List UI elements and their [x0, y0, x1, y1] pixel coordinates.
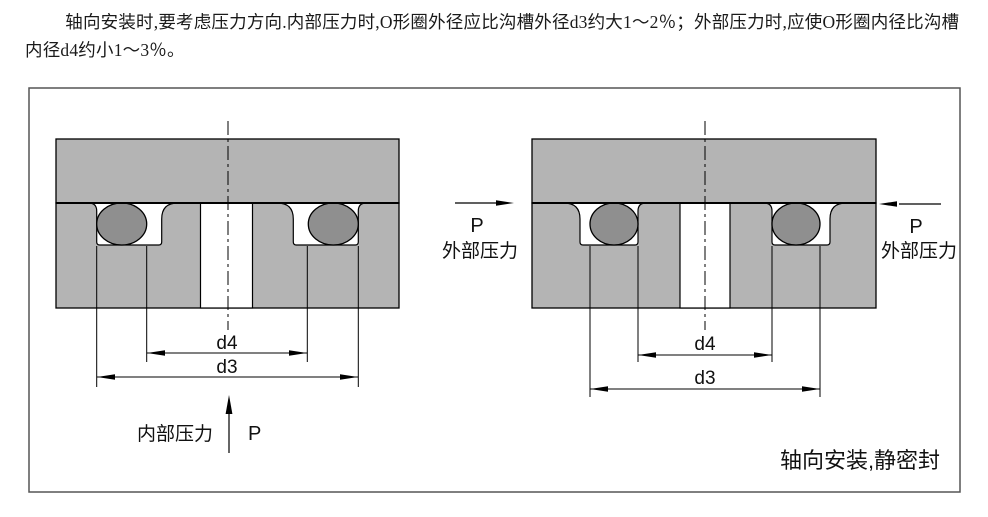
- right-top-block: [532, 139, 876, 203]
- left-d3-label: d3: [216, 357, 237, 378]
- figure-caption: 轴向安装,静密封: [780, 448, 940, 473]
- external-pressure-right-label: 外部压力: [881, 240, 957, 262]
- external-pressure-left-symbol: P: [470, 215, 483, 237]
- left-oring-right: [308, 203, 358, 245]
- internal-pressure-symbol: P: [248, 423, 261, 445]
- external-pressure-right-symbol: P: [909, 216, 922, 238]
- right-oring-left: [590, 203, 638, 245]
- left-oring-left: [97, 203, 147, 245]
- left-d4-label: d4: [216, 333, 238, 354]
- right-oring-right: [772, 203, 820, 245]
- axial-install-figure: d4 d3 内部压力 P: [0, 0, 988, 517]
- internal-pressure-label: 内部压力: [137, 423, 213, 445]
- page: 轴向安装时,要考虑压力方向.内部压力时,O形圈外径应比沟槽外径d3约大1～2％；…: [0, 0, 988, 517]
- external-pressure-left-label: 外部压力: [442, 240, 518, 262]
- intro-paragraph: 轴向安装时,要考虑压力方向.内部压力时,O形圈外径应比沟槽外径d3约大1～2％；…: [25, 8, 967, 64]
- left-bore: [201, 203, 253, 308]
- right-d4-label: d4: [694, 334, 716, 355]
- right-d3-label: d3: [694, 368, 715, 389]
